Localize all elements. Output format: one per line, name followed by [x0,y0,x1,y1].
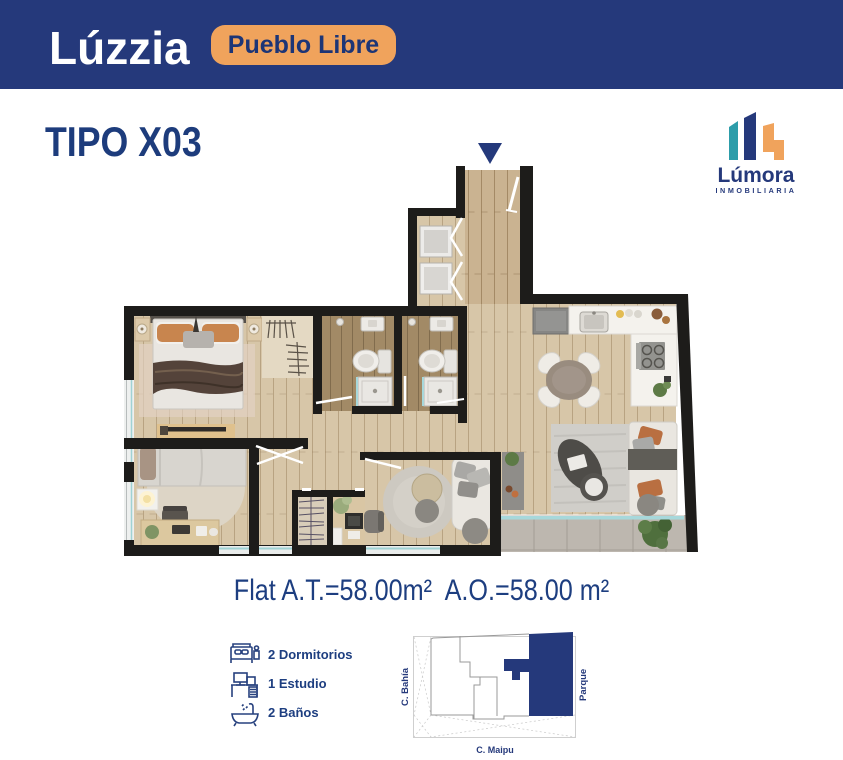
svg-text:Parque: Parque [578,669,589,701]
svg-text:C. Maipu: C. Maipu [476,745,514,755]
svg-text:C. Bahía: C. Bahía [400,667,411,706]
